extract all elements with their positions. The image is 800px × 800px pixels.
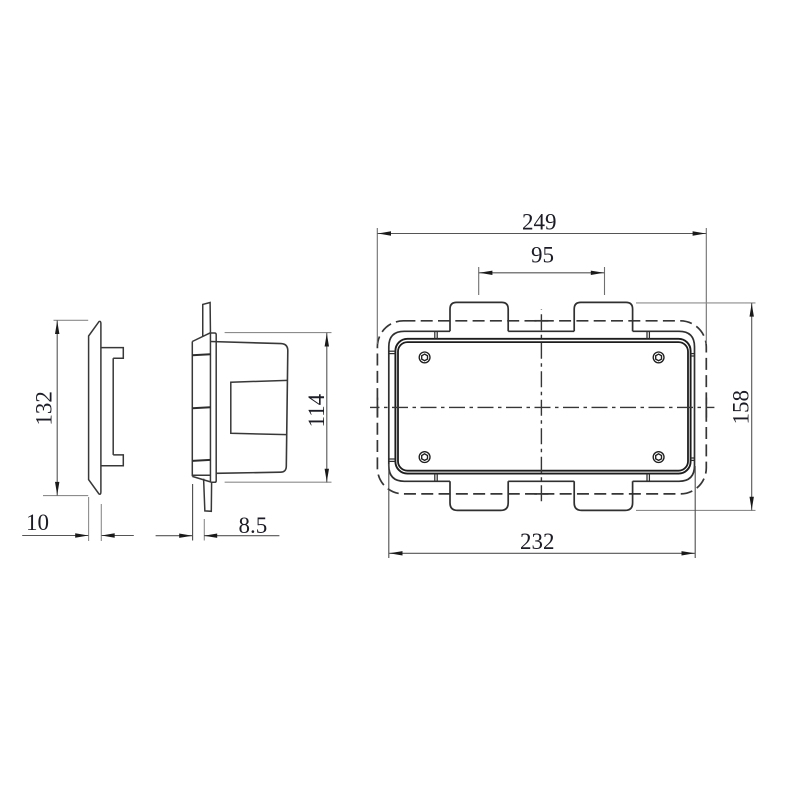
svg-text:114: 114 xyxy=(304,393,329,427)
svg-text:232: 232 xyxy=(520,529,555,554)
svg-text:132: 132 xyxy=(31,391,56,426)
svg-text:8.5: 8.5 xyxy=(239,513,268,538)
svg-text:10: 10 xyxy=(26,510,49,535)
svg-text:158: 158 xyxy=(729,390,754,425)
svg-text:95: 95 xyxy=(531,243,554,268)
svg-text:249: 249 xyxy=(522,210,557,235)
